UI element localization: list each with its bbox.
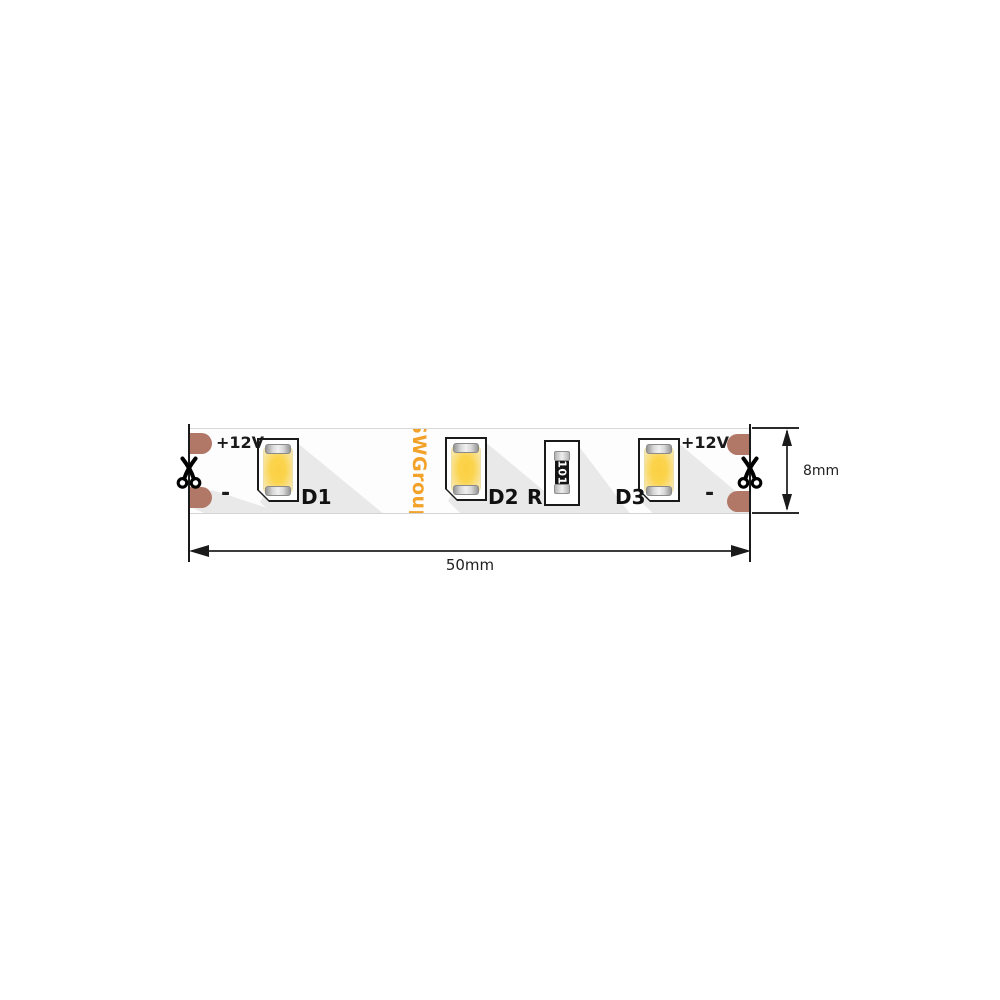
led-d3-label: D3 xyxy=(615,486,646,508)
terminal-label-left-positive: +12V xyxy=(216,433,264,453)
led-d2-electrode-top xyxy=(453,443,479,453)
terminal-label-left-negative: - xyxy=(221,483,230,505)
led-d2 xyxy=(445,437,487,501)
height-dimension-label: 8mm xyxy=(803,463,839,479)
resistor-label: R xyxy=(527,486,542,508)
resistor-band: 101 xyxy=(555,461,569,484)
solder-pad-right-bottom xyxy=(727,491,750,512)
led-d2-electrode-bottom xyxy=(453,485,479,495)
height-arrow-up xyxy=(782,429,792,446)
terminal-label-right-negative: - xyxy=(705,483,714,505)
resistor: 101 xyxy=(544,440,580,506)
brand-text-value: SWGroup xyxy=(408,428,430,514)
strip-body: +12V - +12V - D1 SWGroup D2 R 101 xyxy=(189,428,750,514)
resistor-marking: 101 xyxy=(556,460,569,484)
led-d1-label: D1 xyxy=(301,486,332,508)
width-dimension-line xyxy=(193,550,747,552)
height-arrow-down xyxy=(782,494,792,511)
led-d3-electrode-top xyxy=(646,444,672,454)
scissors-icon-right xyxy=(731,452,769,490)
width-arrow-left xyxy=(189,545,209,557)
resistor-cap-bottom xyxy=(554,484,570,494)
cut-line-left xyxy=(188,424,190,562)
resistor-body: 101 xyxy=(554,451,570,494)
led-d1-electrode-bottom xyxy=(265,486,291,496)
solder-pad-left-top xyxy=(189,433,212,454)
width-dimension-label: 50mm xyxy=(420,556,520,574)
led-d1-electrode-top xyxy=(265,444,291,454)
cut-line-right xyxy=(749,424,751,562)
led-strip-diagram: +12V - +12V - D1 SWGroup D2 R 101 xyxy=(0,0,1000,1000)
height-extension-line-bottom xyxy=(752,512,799,514)
terminal-label-right-positive: +12V xyxy=(681,433,729,453)
solder-pad-left-bottom xyxy=(189,487,212,508)
led-d2-label: D2 xyxy=(488,486,519,508)
led-d3-electrode-bottom xyxy=(646,486,672,496)
scissors-icon-left xyxy=(170,452,208,490)
width-arrow-right xyxy=(731,545,751,557)
